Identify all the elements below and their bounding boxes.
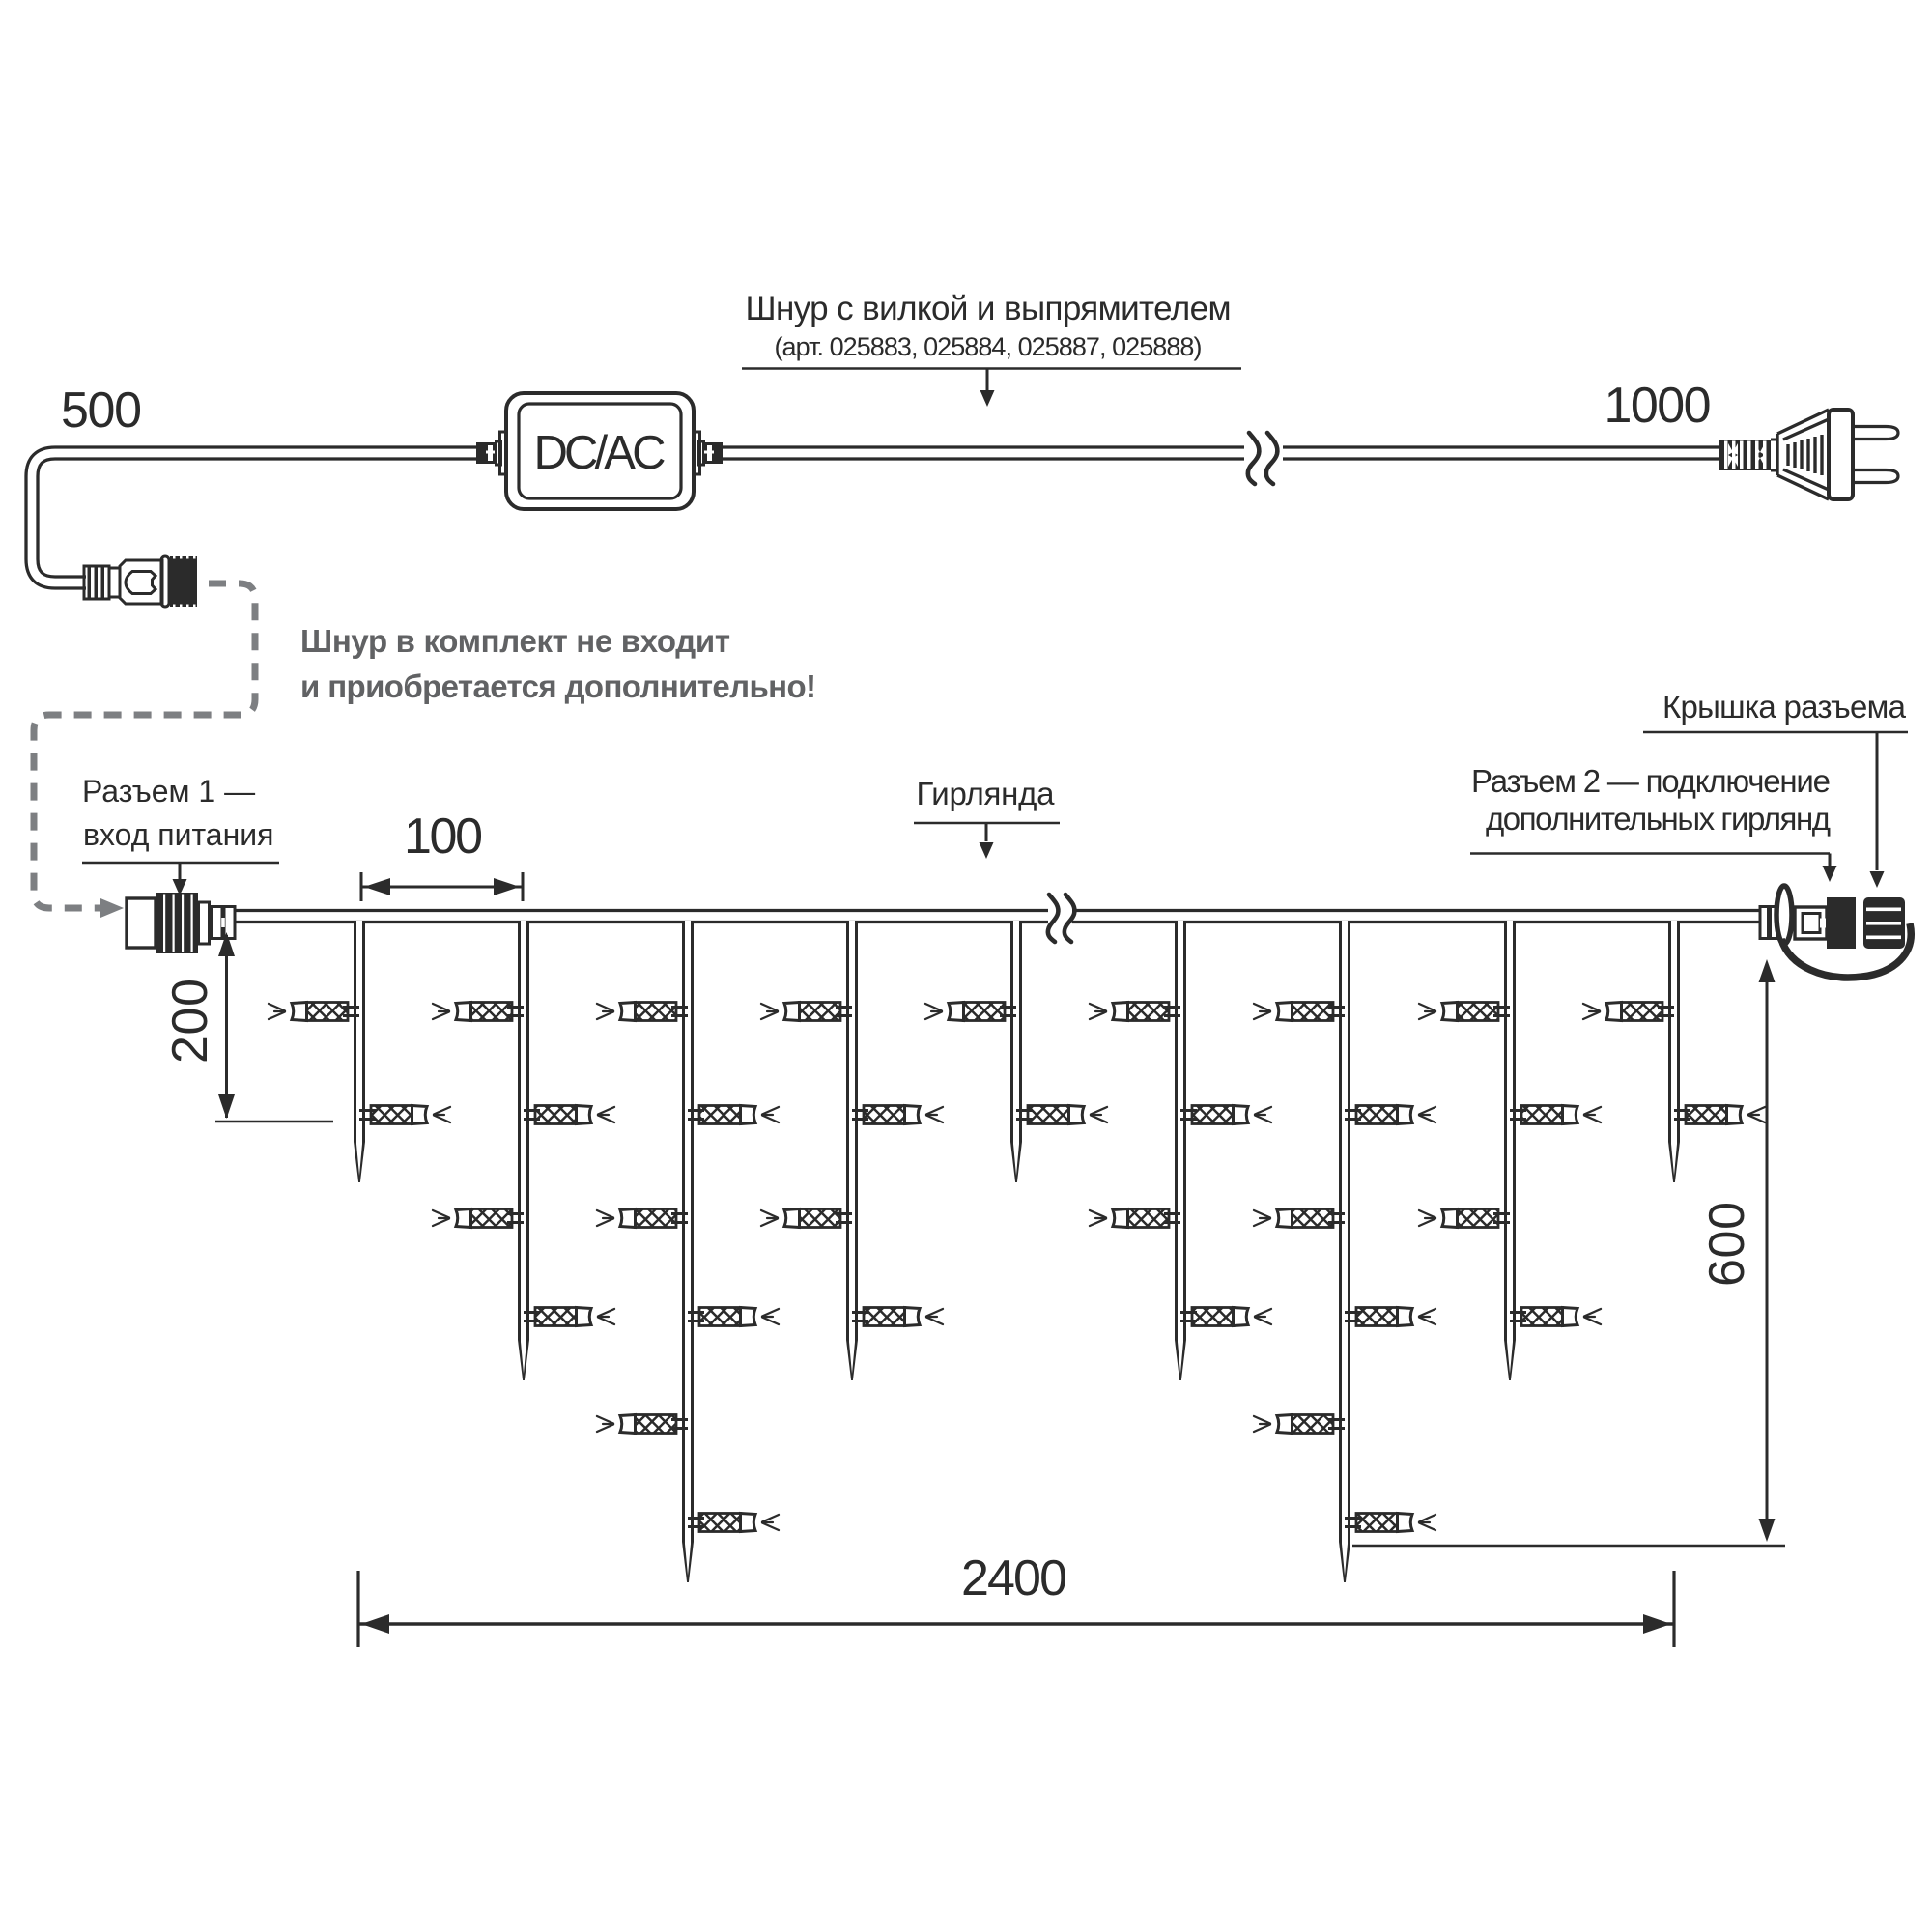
svg-text:Разъем 1 —: Разъем 1 —	[82, 774, 255, 809]
svg-text:1000: 1000	[1605, 378, 1712, 434]
svg-text:DC/AC: DC/AC	[534, 427, 667, 479]
svg-text:и приобретается дополнительно!: и приобретается дополнительно!	[300, 668, 816, 704]
svg-text:Гирлянда: Гирлянда	[917, 776, 1056, 811]
svg-text:вход питания: вход питания	[83, 817, 273, 852]
svg-text:Крышка разъема: Крышка разъема	[1662, 689, 1907, 724]
svg-text:(арт. 025883, 025884, 025887,: (арт. 025883, 025884, 025887, 025888)	[775, 332, 1203, 361]
svg-text:2400: 2400	[961, 1550, 1067, 1606]
svg-text:200: 200	[162, 979, 218, 1064]
svg-text:Разъем 2 — подключение: Разъем 2 — подключение	[1471, 763, 1831, 799]
svg-text:500: 500	[61, 383, 142, 439]
svg-text:Шнур с вилкой и выпрямителем: Шнур с вилкой и выпрямителем	[746, 290, 1232, 327]
svg-text:Шнур в комплект не входит: Шнур в комплект не входит	[300, 623, 730, 659]
svg-text:дополнительных гирлянд: дополнительных гирлянд	[1486, 801, 1831, 837]
svg-text:100: 100	[404, 809, 483, 865]
svg-text:600: 600	[1699, 1202, 1755, 1287]
